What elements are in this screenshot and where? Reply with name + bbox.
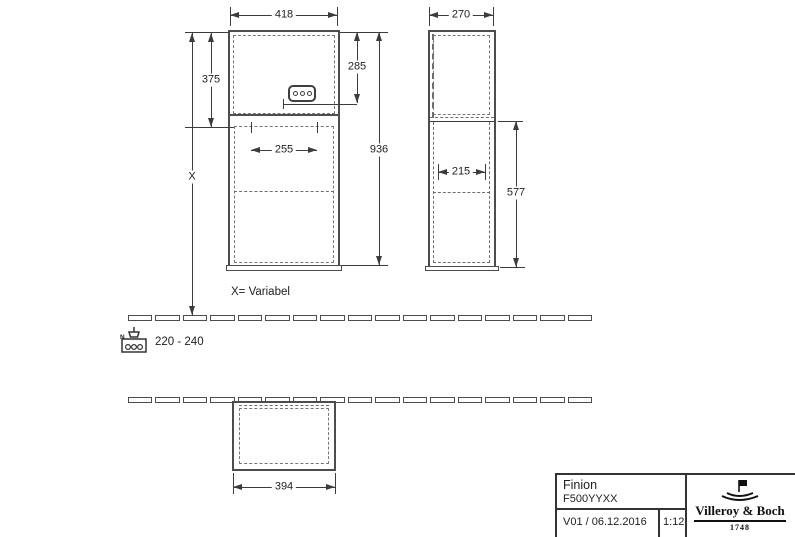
dim-inner-depth: 215 [449, 166, 473, 179]
neutral-label: N [120, 334, 125, 341]
extension-line [335, 473, 336, 494]
dimension-arrow [328, 12, 337, 18]
dim-depth: 270 [449, 9, 473, 22]
extension-line [493, 7, 494, 26]
extension-tick [317, 122, 318, 133]
dimension-arrow [429, 12, 438, 18]
side-view-door-profile [432, 34, 434, 118]
dimension-arrow [233, 484, 242, 490]
dimension-arrow [484, 12, 493, 18]
dimension-arrow [208, 118, 214, 127]
dimension-arrow [513, 121, 519, 130]
dimension-arrow [513, 258, 519, 267]
dimension-arrow [251, 147, 260, 153]
front-view-base-plate [226, 265, 342, 271]
side-view-section-divider [430, 121, 494, 122]
title-block-divider [555, 508, 686, 510]
socket-leader-line [283, 104, 357, 105]
side-view-divider-dashed [430, 117, 494, 118]
drawing-scale: 1:12 [663, 516, 684, 528]
product-code: F500YYXX [563, 493, 617, 505]
dim-variable-height: X [185, 171, 198, 184]
brand-name: Villeroy & Boch [694, 503, 786, 522]
front-view-section-divider [230, 114, 338, 116]
dimension-arrow [476, 169, 485, 175]
dimension-arrow [189, 306, 195, 315]
villeroy-boch-mark-icon [718, 479, 762, 503]
title-block-border [555, 473, 557, 537]
dimension-arrow [438, 169, 447, 175]
brand-logo: Villeroy & Boch 1748 [687, 474, 793, 536]
extension-line [337, 7, 338, 26]
extension-line [498, 121, 523, 122]
dimension-arrow [376, 32, 382, 41]
extension-line [342, 265, 388, 266]
front-view-door-outline [233, 35, 335, 114]
dimension-arrow [354, 32, 360, 41]
front-view-shelf-line [234, 191, 334, 192]
side-view-shelf-line [433, 192, 490, 193]
dimension-arrow [326, 484, 335, 490]
dimension-arrow [208, 33, 214, 42]
technical-drawing-sheet: 418 375 X 285 936 255 270 215 5 [0, 0, 795, 537]
dim-socket-height: 285 [345, 61, 369, 74]
dim-upper-height: 375 [199, 74, 223, 87]
version-date: V01 / 06.12.2016 [563, 516, 647, 528]
brand-year: 1748 [730, 523, 750, 532]
plan-view-inner-line [239, 405, 329, 406]
dim-lower-height: 577 [504, 187, 528, 200]
side-view-base-plate [425, 266, 499, 271]
title-block-divider [658, 508, 660, 537]
extension-line [500, 267, 525, 268]
extension-tick [485, 164, 486, 180]
dimension-arrow [354, 94, 360, 103]
dim-front-width: 418 [272, 9, 296, 22]
dim-total-height: 936 [367, 144, 391, 157]
dimension-arrow [308, 147, 317, 153]
extension-tick [251, 122, 252, 133]
electrical-connection-icon [118, 326, 150, 356]
side-view-door-outline [433, 35, 490, 115]
dim-inner-width: 255 [272, 144, 296, 157]
dimension-arrow [230, 12, 239, 18]
side-view-bottom-dashed [433, 262, 490, 263]
power-socket-icon [288, 85, 316, 102]
floor-hatch-line [128, 315, 592, 321]
dimension-arrow [376, 256, 382, 265]
wall-hatch-line [128, 397, 592, 403]
variable-note: X= Variabel [231, 286, 290, 298]
plan-view-inner-outline [239, 408, 329, 464]
dim-plan-width: 394 [272, 481, 296, 494]
dimension-arrow [189, 33, 195, 42]
voltage-range-label: 220 - 240 [155, 336, 204, 348]
product-name: Finion [563, 478, 597, 492]
